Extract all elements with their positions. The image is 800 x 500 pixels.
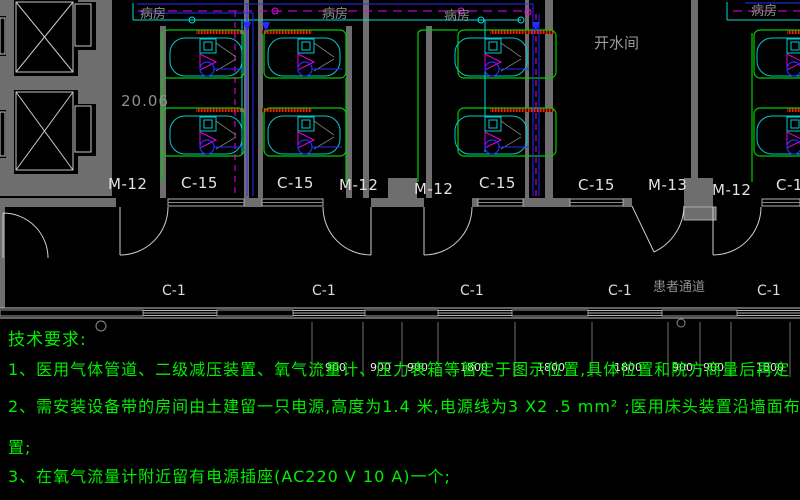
room-label-hot-water-room: 开水间 — [594, 36, 639, 51]
note-line-2: 2、需安装设备带的房间由土建留一只电源,高度为1.4 米,电源线为3 X2 .5… — [8, 397, 800, 416]
window-label-c15-3: C-15 — [479, 176, 516, 191]
window-label-c1-5: C-1 — [757, 284, 781, 298]
note-line-3: 3、在氧气流量计附近留有电源插座(AC220 V 10 A)一个; — [8, 467, 451, 486]
door-label-m13: M-13 — [648, 178, 687, 193]
door-label-m12-3: M-12 — [414, 182, 453, 197]
plan-labels: 病房病房病房病房开水间患者通道20.06M-12C-15C-15M-12M-12… — [0, 0, 800, 380]
cad-canvas: 病房病房病房病房开水间患者通道20.06M-12C-15C-15M-12M-12… — [0, 0, 800, 500]
elevation-marker: 20.06 — [121, 94, 169, 109]
window-label-c15-4: C-15 — [578, 178, 615, 193]
notes-heading: 技术要求: — [8, 330, 87, 350]
window-label-c1-3: C-1 — [460, 284, 484, 298]
note-line-1: 1、医用气体管道、二级减压装置、氧气流量计、压力表箱等暂定于图示位置,具体位置和… — [8, 360, 790, 379]
window-label-c1-2: C-1 — [312, 284, 336, 298]
window-label-c15-2: C-15 — [277, 176, 314, 191]
note-line-2-wrap: 置; — [8, 438, 31, 457]
window-label-c1-4: C-1 — [608, 284, 632, 298]
room-label-ward-4: 病房 — [751, 5, 777, 18]
window-label-c15-1: C-15 — [181, 176, 218, 191]
window-label-c15-5: C-15 — [776, 178, 800, 193]
door-label-m12-1: M-12 — [108, 177, 147, 192]
door-label-m12-4: M-12 — [712, 183, 751, 198]
room-label-ward-3: 病房 — [444, 10, 470, 23]
room-label-ward-2: 病房 — [322, 8, 348, 21]
room-label-ward-1: 病房 — [140, 8, 166, 21]
door-label-m12-2: M-12 — [339, 178, 378, 193]
room-label-patient-corridor: 患者通道 — [653, 281, 705, 294]
window-label-c1-1: C-1 — [162, 284, 186, 298]
